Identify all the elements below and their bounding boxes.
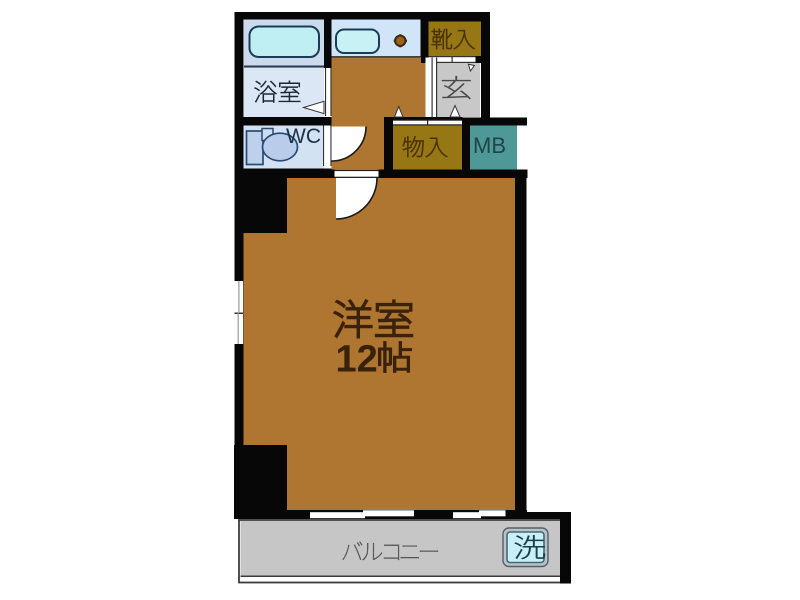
svg-text:MB: MB	[473, 133, 506, 158]
svg-text:12: 12	[336, 339, 378, 381]
svg-text:WC: WC	[286, 125, 321, 148]
